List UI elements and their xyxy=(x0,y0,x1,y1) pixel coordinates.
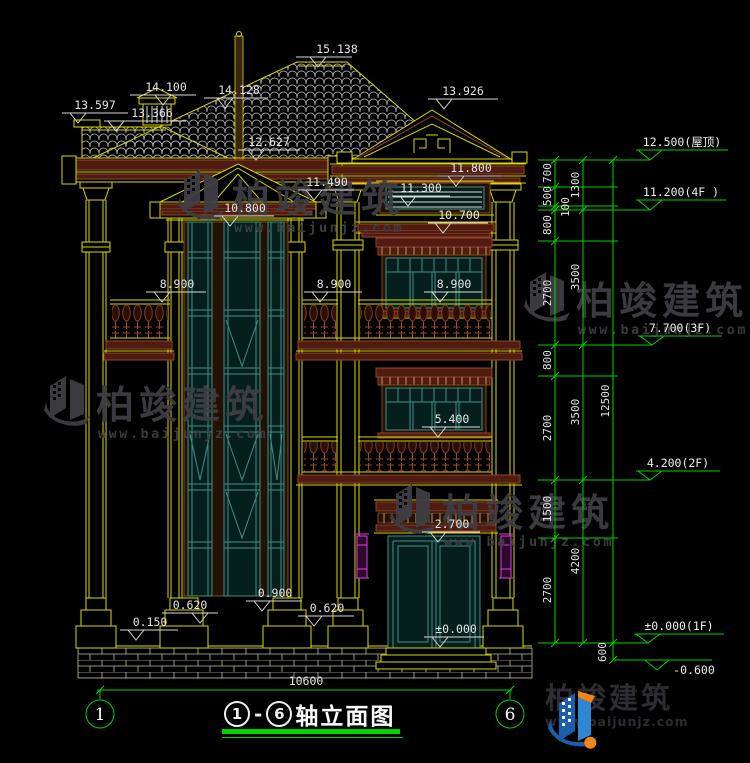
logo-mark-icon xyxy=(545,683,605,757)
title-text: 轴立面图 xyxy=(295,697,395,731)
elevation-mark: 14.128 xyxy=(218,83,260,97)
dim-value: 100 xyxy=(559,197,572,217)
level-label: 12.500(屋顶) xyxy=(643,135,721,149)
overall-width-dim: 10600 xyxy=(289,674,324,688)
watermark-url: www.baijunjz.com xyxy=(234,220,404,236)
dim-value: 1300 xyxy=(569,172,582,199)
dim-value: 2700 xyxy=(541,577,554,604)
watermark: 柏竣建筑 www.baijunjz.com xyxy=(44,376,268,442)
title-dash: - xyxy=(254,702,262,726)
watermark-name: 柏竣建筑 xyxy=(96,383,268,427)
level-marker: 12.500(屋顶) xyxy=(613,135,728,160)
dim-value: 3500 xyxy=(569,399,582,426)
elevation-mark: 8.900 xyxy=(317,277,352,291)
level-marker: 11.200(4F ) xyxy=(613,185,726,210)
elevation-mark: 13.597 xyxy=(74,98,116,112)
balustrade-3f xyxy=(104,300,522,360)
elevation-mark: 0.150 xyxy=(133,615,168,629)
elevation-mark: 13.926 xyxy=(442,84,484,98)
elevation-mark: 0.620 xyxy=(173,598,208,612)
dim-value: 800 xyxy=(541,350,554,370)
elevation-mark: 8.900 xyxy=(160,277,195,291)
elevation-mark: 2.700 xyxy=(435,517,470,531)
level-label: 7.700(3F) xyxy=(649,321,711,335)
elevation-mark: 10.800 xyxy=(224,201,266,215)
dim-value: 700 xyxy=(541,163,554,183)
elevation-mark: 15.138 xyxy=(316,42,358,56)
elevation-drawing: 柏竣建筑 www.baijunjz.com 柏竣建筑 www.baijunjz.… xyxy=(0,0,750,763)
dim-value: 800 xyxy=(541,215,554,235)
watermark-url: www.baijunjz.com xyxy=(444,534,614,550)
dim-value: 12500 xyxy=(599,384,612,417)
axis-number-left: 1 xyxy=(95,705,106,725)
elevation-mark: 14.100 xyxy=(145,80,187,94)
elevation-mark: 10.700 xyxy=(438,208,480,222)
title-underline-thin xyxy=(222,737,403,738)
axis-number-right: 6 xyxy=(505,705,516,725)
elevation-mark: 0.620 xyxy=(310,601,345,615)
cad-elevation-screenshot: 柏竣建筑 www.baijunjz.com 柏竣建筑 www.baijunjz.… xyxy=(0,0,750,763)
elevation-mark: 13.366 xyxy=(131,106,173,120)
elevation-mark: 11.490 xyxy=(306,175,348,189)
elevation-mark: 0.900 xyxy=(258,586,293,600)
level-marker: 4.200(2F) xyxy=(613,456,720,480)
level-label: ±0.000(1F) xyxy=(644,619,713,633)
title-underline-thick xyxy=(222,729,400,734)
entry-door xyxy=(376,536,496,669)
dim-value: 500 xyxy=(541,186,554,206)
elevation-mark: 11.300 xyxy=(400,181,442,195)
elevation-mark: 5.400 xyxy=(435,412,470,426)
elevation-mark: ±0.000 xyxy=(435,622,477,636)
dimension-system: 700 500 100 800 2700 800 2700 1500 2700 … xyxy=(538,135,728,677)
dim-value: 600 xyxy=(596,642,609,662)
watermark: 柏竣建筑 www.baijunjz.com xyxy=(524,272,748,338)
elevation-mark: 8.900 xyxy=(437,277,472,291)
dim-value: 2700 xyxy=(541,415,554,442)
level-label: -0.600 xyxy=(673,663,715,677)
company-logo: 柏竣建筑 www.baijunjz.com xyxy=(545,683,689,729)
level-marker: ±0.000(1F) xyxy=(613,619,724,643)
dim-value: 3500 xyxy=(569,264,582,291)
level-label: 11.200(4F ) xyxy=(643,185,719,199)
watermark-name: 柏竣建筑 xyxy=(576,279,748,323)
dim-value: 2700 xyxy=(541,280,554,307)
balustrade-2f xyxy=(296,437,522,485)
dim-value: 1500 xyxy=(541,496,554,523)
elevation-mark: 11.800 xyxy=(450,161,492,175)
watermark-url: www.baijunjz.com xyxy=(98,426,268,442)
elevation-mark: 12.627 xyxy=(248,135,290,149)
title-axis-start: 1 xyxy=(224,701,250,727)
title-axis-end: 6 xyxy=(266,701,292,727)
drawing-title: 1 - 6 轴立面图 xyxy=(224,697,395,731)
level-label: 4.200(2F) xyxy=(647,456,709,470)
wall-lamp-left xyxy=(355,534,369,578)
dim-value: 4200 xyxy=(569,548,582,575)
level-marker: -0.600 xyxy=(613,660,715,677)
